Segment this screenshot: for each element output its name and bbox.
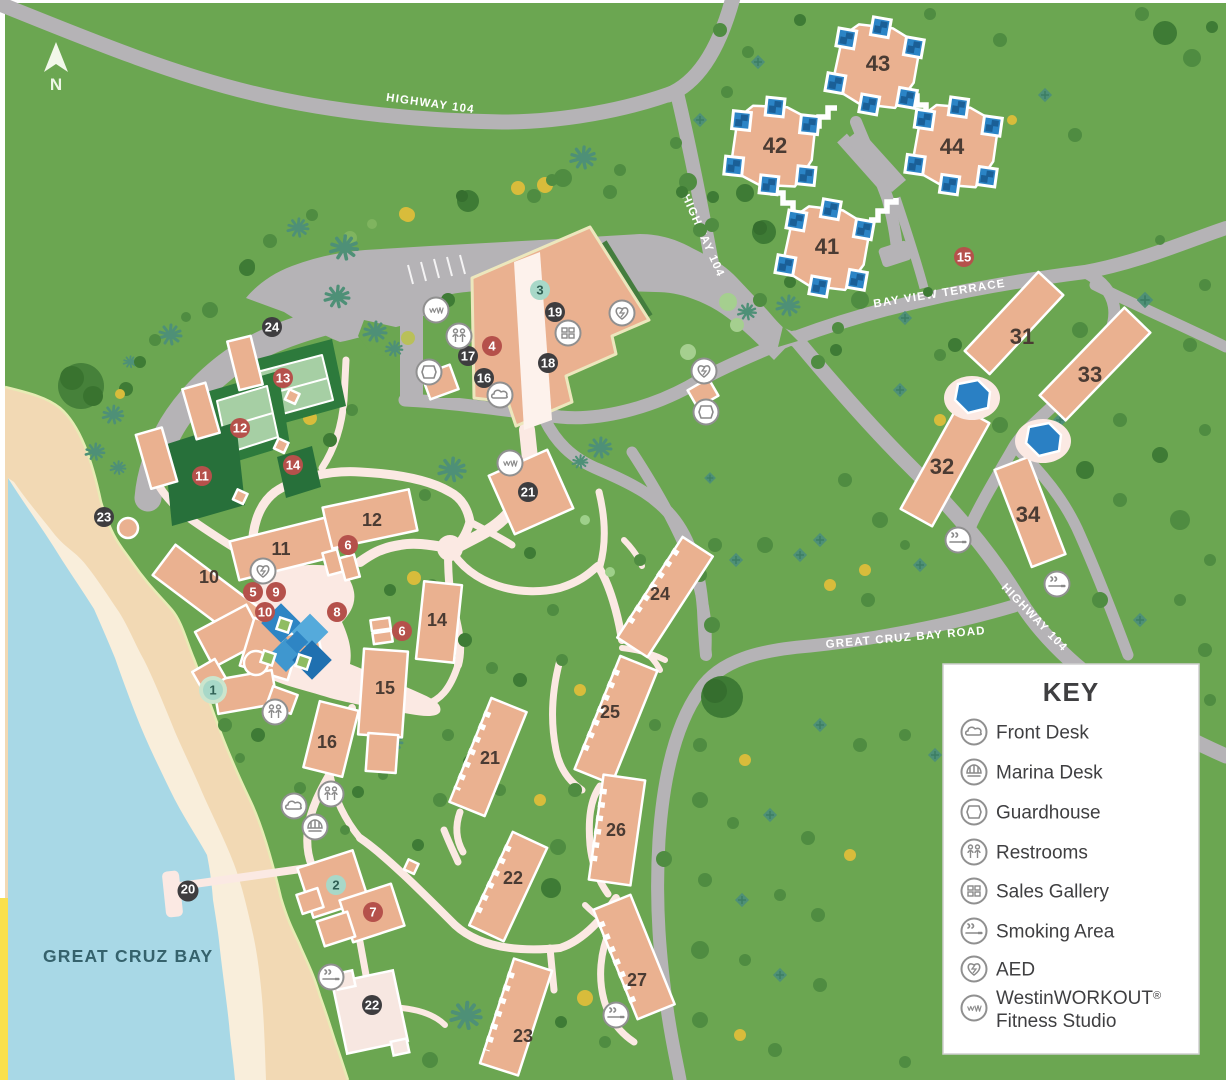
svg-text:WestinWORKOUT®: WestinWORKOUT® (996, 988, 1161, 1009)
svg-text:9: 9 (272, 585, 279, 600)
svg-text:33: 33 (1078, 362, 1102, 387)
svg-text:N: N (50, 75, 62, 94)
svg-text:11: 11 (195, 469, 209, 484)
svg-text:16: 16 (477, 371, 491, 386)
svg-text:31: 31 (1010, 324, 1034, 349)
svg-text:23: 23 (97, 510, 111, 525)
svg-text:Marina Desk: Marina Desk (996, 763, 1103, 784)
svg-text:4: 4 (488, 339, 496, 354)
svg-text:24: 24 (265, 320, 280, 335)
svg-text:5: 5 (249, 585, 256, 600)
svg-text:Restrooms: Restrooms (996, 843, 1088, 864)
svg-text:44: 44 (940, 134, 965, 159)
svg-text:14: 14 (427, 610, 447, 630)
svg-text:Front Desk: Front Desk (996, 723, 1089, 744)
svg-text:22: 22 (503, 868, 523, 888)
svg-text:Sales Gallery: Sales Gallery (996, 882, 1109, 903)
svg-text:25: 25 (600, 702, 620, 722)
svg-text:22: 22 (365, 998, 379, 1013)
svg-text:2: 2 (332, 878, 339, 893)
svg-text:7: 7 (369, 905, 376, 920)
svg-text:34: 34 (1016, 502, 1041, 527)
svg-text:20: 20 (181, 882, 195, 897)
svg-text:12: 12 (233, 421, 247, 436)
svg-text:17: 17 (461, 349, 475, 364)
svg-text:3: 3 (536, 283, 543, 298)
svg-text:12: 12 (362, 510, 382, 530)
svg-text:10: 10 (199, 567, 219, 587)
svg-text:19: 19 (548, 305, 562, 320)
svg-text:13: 13 (276, 371, 290, 386)
svg-text:15: 15 (957, 250, 971, 265)
svg-text:18: 18 (541, 356, 555, 371)
svg-text:14: 14 (286, 458, 301, 473)
svg-text:Guardhouse: Guardhouse (996, 803, 1101, 824)
svg-text:32: 32 (930, 454, 954, 479)
svg-text:16: 16 (317, 732, 337, 752)
svg-text:Smoking Area: Smoking Area (996, 922, 1115, 943)
svg-text:10: 10 (258, 605, 272, 620)
svg-text:GREAT CRUZ BAY: GREAT CRUZ BAY (43, 946, 213, 966)
svg-text:1: 1 (209, 683, 216, 698)
svg-text:6: 6 (398, 624, 405, 639)
svg-text:41: 41 (815, 234, 839, 259)
svg-text:23: 23 (513, 1026, 533, 1046)
svg-text:AED: AED (996, 960, 1035, 981)
svg-text:15: 15 (375, 678, 395, 698)
svg-text:6: 6 (344, 538, 351, 553)
svg-text:26: 26 (606, 820, 626, 840)
svg-text:21: 21 (480, 748, 500, 768)
svg-text:8: 8 (333, 605, 340, 620)
svg-text:11: 11 (271, 539, 290, 559)
svg-text:43: 43 (866, 51, 890, 76)
svg-text:KEY: KEY (1043, 677, 1099, 707)
svg-text:Fitness Studio: Fitness Studio (996, 1011, 1116, 1032)
svg-text:42: 42 (763, 133, 787, 158)
svg-text:27: 27 (627, 970, 647, 990)
svg-text:24: 24 (650, 584, 670, 604)
svg-text:21: 21 (521, 485, 535, 500)
